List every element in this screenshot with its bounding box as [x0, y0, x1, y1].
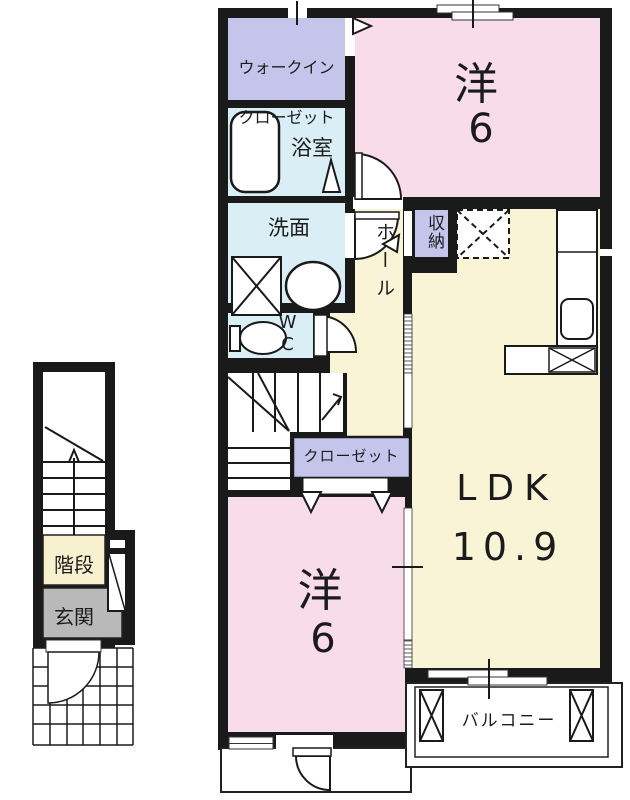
- bedroom-lower-size: 6: [293, 616, 353, 662]
- entrance-tile-grid: [33, 640, 133, 745]
- room-hall-c: [347, 373, 403, 437]
- bedroom-upper-name: 洋: [446, 48, 506, 112]
- floor-plan-image: { "title": "2F apartment floor plan", "r…: [0, 0, 630, 800]
- kitchen-sink: [561, 299, 593, 339]
- stairs-lower-floor: [228, 432, 290, 490]
- washroom-label: 洗面: [259, 212, 319, 242]
- ldk-name: LDK: [436, 468, 578, 509]
- entrance-label: 玄関: [44, 601, 104, 630]
- bedroom-upper-size: 6: [451, 106, 511, 152]
- storage-door-opening: [404, 211, 412, 256]
- washing-machine-pan: [232, 257, 281, 315]
- storage-label: 収納: [422, 214, 447, 250]
- stove: [549, 348, 595, 372]
- balcony-x-mark-left: [420, 690, 443, 741]
- bathroom-label: 浴室: [284, 132, 340, 162]
- closet-label: クローゼット: [293, 445, 410, 466]
- washbasin: [286, 262, 340, 310]
- stairs-label: 階段: [42, 549, 106, 578]
- hall-label: ホール: [371, 222, 398, 306]
- balcony-x-mark-right: [570, 690, 593, 741]
- ldk-size: 10.9: [428, 525, 588, 569]
- 1f-door-notch: [110, 540, 125, 548]
- toilet-label: WC: [277, 312, 298, 356]
- bedroom-lower-name: 洋: [288, 554, 352, 619]
- balcony-label: バルコニー: [448, 706, 570, 731]
- refrigerator-space: [457, 210, 509, 258]
- 1f-entry-door: [108, 553, 126, 611]
